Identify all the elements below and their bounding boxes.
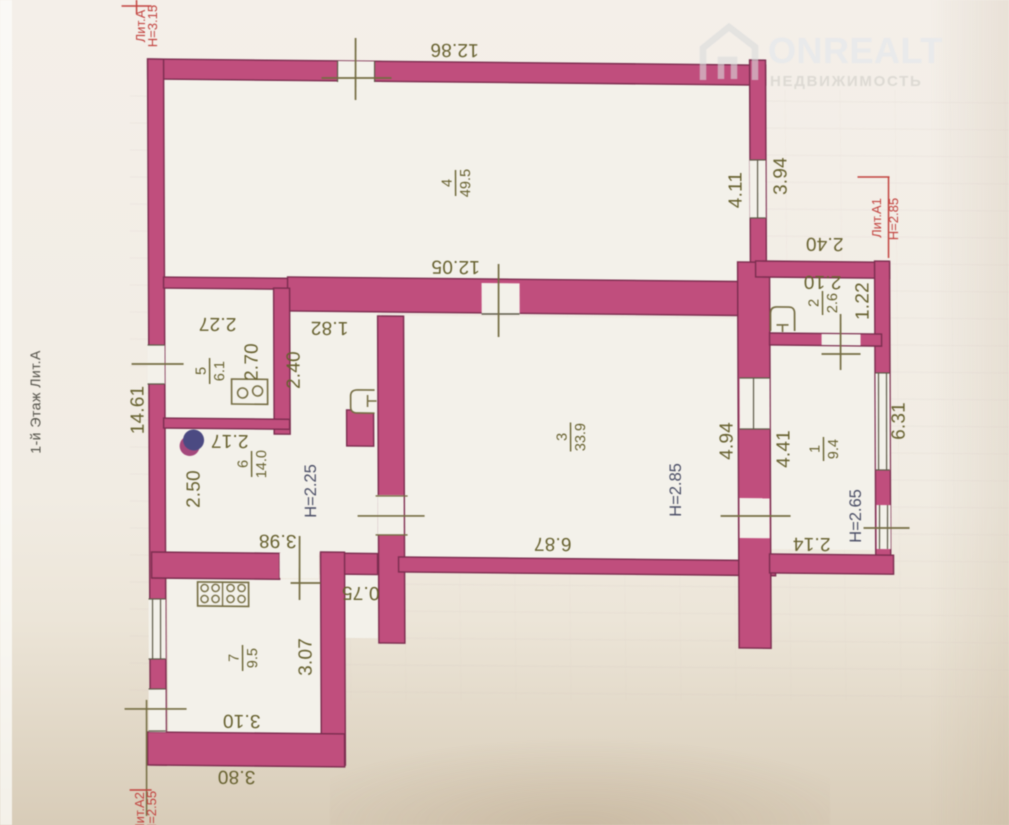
svg-text:12.86: 12.86 bbox=[430, 39, 479, 60]
svg-text:5: 5 bbox=[194, 367, 210, 375]
svg-text:2.40: 2.40 bbox=[806, 233, 844, 254]
svg-text:2.50: 2.50 bbox=[184, 470, 205, 508]
svg-text:2.14: 2.14 bbox=[792, 533, 830, 554]
svg-text:1: 1 bbox=[807, 445, 823, 453]
svg-text:6.87: 6.87 bbox=[534, 533, 572, 554]
svg-text:3.80: 3.80 bbox=[218, 766, 256, 787]
svg-text:49.5: 49.5 bbox=[458, 169, 474, 197]
svg-text:4: 4 bbox=[440, 179, 456, 187]
svg-text:6.1: 6.1 bbox=[212, 361, 228, 381]
svg-text:6: 6 bbox=[236, 460, 252, 468]
svg-text:2.70: 2.70 bbox=[242, 343, 263, 381]
svg-text:0.75: 0.75 bbox=[342, 582, 380, 603]
svg-text:2.6: 2.6 bbox=[825, 293, 841, 313]
svg-text:2.17: 2.17 bbox=[211, 430, 249, 451]
svg-text:2.40: 2.40 bbox=[284, 351, 305, 389]
svg-text:9.4: 9.4 bbox=[826, 439, 842, 459]
svg-text:1-й Этаж Лит.А: 1-й Этаж Лит.А bbox=[27, 350, 43, 454]
svg-text:Лит.А1: Лит.А1 bbox=[869, 198, 884, 238]
svg-text:1.22: 1.22 bbox=[852, 282, 873, 320]
svg-text:2.10: 2.10 bbox=[804, 271, 842, 292]
svg-text:4.94: 4.94 bbox=[717, 422, 738, 460]
svg-text:НЕДВИЖИМОСТЬ: НЕДВИЖИМОСТЬ bbox=[770, 73, 922, 90]
svg-text:Н=2.85: Н=2.85 bbox=[667, 463, 685, 517]
svg-text:3: 3 bbox=[555, 433, 571, 441]
svg-text:12.05: 12.05 bbox=[431, 256, 480, 277]
svg-text:1.82: 1.82 bbox=[311, 317, 349, 338]
svg-text:Н=2.55: Н=2.55 bbox=[144, 791, 159, 825]
svg-text:ONREALT: ONREALT bbox=[768, 30, 943, 71]
svg-text:Н=3.15: Н=3.15 bbox=[145, 5, 160, 47]
svg-text:6.31: 6.31 bbox=[889, 402, 910, 440]
svg-text:33.9: 33.9 bbox=[573, 423, 589, 451]
svg-text:4.41: 4.41 bbox=[773, 430, 794, 468]
svg-text:3.94: 3.94 bbox=[770, 157, 791, 195]
svg-text:3.98: 3.98 bbox=[259, 530, 297, 551]
svg-text:2.27: 2.27 bbox=[199, 313, 237, 334]
svg-text:14.61: 14.61 bbox=[127, 386, 148, 435]
svg-text:2: 2 bbox=[807, 299, 823, 307]
svg-text:14.0: 14.0 bbox=[254, 450, 270, 478]
svg-text:3.10: 3.10 bbox=[223, 710, 261, 731]
svg-text:4.11: 4.11 bbox=[726, 172, 747, 209]
svg-text:Н=2.25: Н=2.25 bbox=[302, 464, 320, 518]
svg-text:9.5: 9.5 bbox=[245, 648, 261, 668]
svg-text:7: 7 bbox=[227, 654, 243, 662]
svg-text:3.07: 3.07 bbox=[296, 638, 317, 676]
svg-text:Н=2.65: Н=2.65 bbox=[847, 489, 865, 543]
